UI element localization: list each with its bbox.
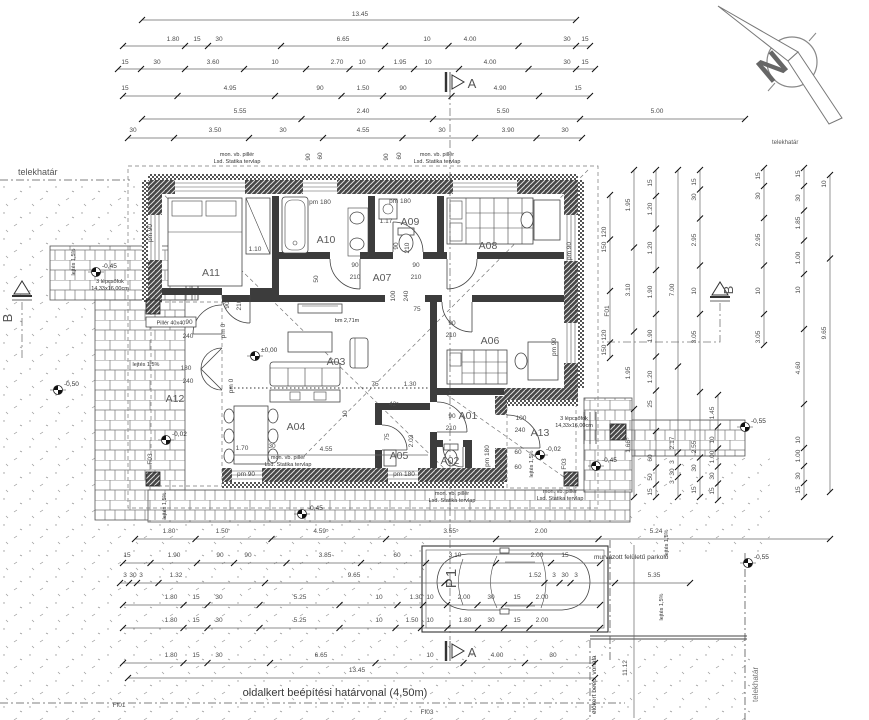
bed-a06 bbox=[447, 350, 507, 384]
dim-label: 30 bbox=[709, 472, 716, 480]
dim-label: 10 bbox=[358, 59, 366, 66]
dim-label: 3.05 bbox=[755, 330, 762, 343]
level-value: -0,02 bbox=[546, 446, 561, 453]
level-value: -0,02 bbox=[172, 431, 187, 438]
dim-label: 10 bbox=[424, 59, 432, 66]
svg-text:A: A bbox=[468, 645, 477, 660]
dim-label: 10 bbox=[426, 594, 434, 601]
plan-dim-label: pm 0 bbox=[220, 323, 227, 338]
dim-label: 2.00 bbox=[531, 552, 544, 559]
door bbox=[447, 259, 477, 289]
plan-dim-label: 75 bbox=[384, 433, 391, 441]
plan-dim-label: 90 bbox=[224, 301, 231, 309]
plan-dim-label: 210 bbox=[446, 332, 457, 339]
dim-label: 30 bbox=[438, 127, 446, 134]
dim-label: 1.90 bbox=[647, 285, 654, 298]
terrace-door bbox=[193, 305, 222, 334]
plan-dim-label: 11.12 bbox=[622, 660, 629, 676]
plan-dim-label: 90 bbox=[393, 242, 400, 250]
dim-label: 90 bbox=[399, 85, 407, 92]
dim-label: 2.00 bbox=[458, 594, 471, 601]
dim-label: 1.95 bbox=[625, 366, 632, 379]
window bbox=[453, 180, 517, 194]
dim-label: 13.45 bbox=[352, 11, 369, 18]
dim-label: 60 bbox=[393, 552, 401, 559]
dim-label: 3.60 bbox=[207, 59, 220, 66]
plan-dim-label: 90 bbox=[305, 153, 312, 161]
plan-dim-label: 1.10 bbox=[249, 246, 262, 253]
dim-label: 2.70 bbox=[331, 59, 344, 66]
dim-label: 3 bbox=[123, 572, 127, 579]
dim-label: 5.00 bbox=[651, 108, 664, 115]
dim-label: 6.65 bbox=[337, 36, 350, 43]
dim-label: 1.90 bbox=[168, 552, 181, 559]
dim-label: 15 bbox=[121, 59, 129, 66]
dim-label: 10 bbox=[271, 59, 279, 66]
dim-label: 30 bbox=[669, 468, 676, 476]
dim-label: 120 bbox=[601, 226, 608, 237]
dim-label: 10 bbox=[375, 617, 383, 624]
plan-dim-label: 100 bbox=[390, 290, 397, 301]
steps-note: 3 lépcsőfok bbox=[560, 416, 588, 422]
svg-text:B: B bbox=[0, 314, 15, 323]
dim-label: 15 bbox=[561, 552, 569, 559]
room-label-a13: A13 bbox=[531, 427, 550, 439]
dim-label: 1.52 bbox=[529, 572, 542, 579]
steps-note: 14,33x16,00cm bbox=[555, 423, 593, 429]
dim-label: 15 bbox=[709, 487, 716, 495]
statika-note: mon. vb. pillér bbox=[271, 455, 305, 461]
slope-note: lejtés 1,5% bbox=[529, 450, 535, 477]
dim-label: 4.95 bbox=[224, 85, 237, 92]
room-label-a11: A11 bbox=[202, 267, 220, 279]
room-label-a07: A07 bbox=[373, 272, 392, 284]
steps-note: 14,33x16,00cm bbox=[91, 286, 129, 292]
dim-label: 15 bbox=[123, 552, 131, 559]
ref-label: F03 bbox=[561, 458, 568, 470]
oldalkert-label: oldalkert beépítési határvonal (4,50m) bbox=[243, 687, 428, 699]
dim-label: 30 bbox=[153, 59, 161, 66]
section-a-marker-top: A bbox=[446, 72, 477, 92]
dim-label: 15 bbox=[647, 179, 654, 187]
dim-label: 13.45 bbox=[349, 667, 366, 674]
dim-label: 90 bbox=[216, 552, 224, 559]
plan-dim-label: 75 bbox=[413, 306, 421, 313]
plan-dim-label: 210 bbox=[350, 274, 361, 281]
dim-label: 15 bbox=[795, 486, 802, 494]
level-value: ±0,00 bbox=[261, 347, 278, 354]
dim-label: 1.00 bbox=[795, 449, 802, 462]
kitchen-counter-a04 bbox=[270, 390, 340, 402]
dim-label: 10 bbox=[423, 36, 431, 43]
dim-label: 5.50 bbox=[497, 108, 510, 115]
statika-note: Lsd. Statika tervlap bbox=[537, 496, 584, 502]
dim-label: 15 bbox=[574, 85, 582, 92]
statika-note: Lsd. Statika tervlap bbox=[265, 462, 312, 468]
dim-label: 3.50 bbox=[209, 127, 222, 134]
statika-note: Lsd. Statika tervlap bbox=[414, 159, 461, 165]
parking-note: murvázott felületű parkoló bbox=[594, 554, 669, 561]
dim-label: 2.00 bbox=[536, 617, 549, 624]
plan-dim-label: 240 bbox=[183, 333, 194, 340]
ceiling-height-note: bm 2,71m bbox=[335, 318, 360, 324]
statika-note: mon. vb. pillér bbox=[543, 489, 577, 495]
dim-label: 10 bbox=[426, 617, 434, 624]
plan-dim-label: pm 180 bbox=[389, 198, 411, 205]
dim-label: 10 bbox=[691, 287, 698, 295]
dim-label: 3.10 bbox=[449, 552, 462, 559]
dim-label: 120 bbox=[601, 329, 608, 340]
dim-label: 30 bbox=[215, 617, 223, 624]
dim-label: 1.45 bbox=[709, 406, 716, 419]
dim-label: 1.80 bbox=[163, 528, 176, 535]
dim-label: 2.95 bbox=[755, 233, 762, 246]
dim-label: 4.00 bbox=[491, 652, 504, 659]
dim-label: 10 bbox=[795, 436, 802, 444]
telekhatar-right-label: telekhatár bbox=[751, 667, 760, 702]
dim-label: 4.60 bbox=[795, 361, 802, 374]
room-label-a04: A04 bbox=[287, 421, 306, 433]
dim-label: 1.32 bbox=[170, 572, 183, 579]
dim-label: 15 bbox=[691, 486, 698, 494]
dim-label: 5.25 bbox=[294, 617, 307, 624]
section-b-marker-right: B bbox=[600, 282, 736, 342]
window bbox=[303, 180, 337, 194]
room-label-a12: A12 bbox=[166, 393, 185, 405]
plan-dim-label: 60 bbox=[317, 152, 324, 160]
dim-label: 2.95 bbox=[691, 233, 698, 246]
room-label-a06: A06 bbox=[481, 335, 500, 347]
dim-label: 1.95 bbox=[394, 59, 407, 66]
room-label-a05: A05 bbox=[390, 450, 409, 462]
plan-dim-label: 240 bbox=[515, 427, 526, 434]
slope-note: lejtés 1,5% bbox=[162, 492, 168, 519]
dim-label: 9.65 bbox=[821, 326, 828, 339]
dim-label: 3.85 bbox=[319, 552, 332, 559]
statika-note: Lsd. Statika tervlap bbox=[214, 159, 261, 165]
plan-dim-label: 1.30 bbox=[404, 381, 417, 388]
armchair-a03 bbox=[350, 338, 368, 368]
plan-dim-label: 90 bbox=[383, 153, 390, 161]
svg-text:B: B bbox=[721, 286, 736, 295]
plan-dim-label: pm 90 bbox=[566, 242, 573, 260]
svg-text:Pillér 40x40: Pillér 40x40 bbox=[157, 321, 186, 327]
dim-label: 30 bbox=[549, 652, 557, 659]
plan-dim-label: 90 bbox=[448, 413, 456, 420]
dim-label: 60 bbox=[647, 454, 654, 462]
dim-label: 15 bbox=[513, 594, 521, 601]
room-label-a01: A01 bbox=[459, 410, 478, 422]
level-value: -0,55 bbox=[754, 554, 769, 561]
level-value: -0,55 bbox=[751, 418, 766, 425]
level-value: -0,45 bbox=[308, 505, 323, 512]
plan-dim-label: 60 bbox=[514, 449, 522, 456]
telekhatar-top-right-label: telekhatár bbox=[772, 140, 798, 146]
parking-stall-label: P1 bbox=[443, 568, 460, 588]
dim-label: 1.20 bbox=[647, 202, 654, 215]
dim-label: 9.65 bbox=[348, 572, 361, 579]
dim-label: 15 bbox=[121, 85, 129, 92]
dim-label: 30 bbox=[129, 127, 137, 134]
dim-label: 30 bbox=[215, 594, 223, 601]
plan-dim-label: pm 180 bbox=[484, 445, 491, 467]
plan-dim-label: 210 bbox=[446, 425, 457, 432]
dim-label: 1.50 bbox=[216, 528, 229, 535]
plan-dim-label: pm 90 bbox=[147, 224, 154, 242]
plan-dim-label: pm 90 bbox=[237, 471, 255, 478]
dim-label: 2.17 bbox=[669, 436, 676, 449]
dim-label: 25 bbox=[647, 400, 654, 408]
level-value: -0,45 bbox=[102, 263, 117, 270]
window bbox=[175, 180, 245, 194]
plan-dim-label: 30 bbox=[268, 443, 276, 450]
dim-label: 50 bbox=[647, 473, 654, 481]
dim-label: 15 bbox=[192, 652, 200, 659]
dim-label: 1.80 bbox=[165, 652, 178, 659]
level-value: -0,45 bbox=[602, 457, 617, 464]
statika-note: mon. vb. pillér bbox=[220, 152, 254, 158]
dim-label: 15 bbox=[755, 172, 762, 180]
dim-label: 3 bbox=[669, 460, 676, 464]
dim-label: 15 bbox=[581, 36, 589, 43]
plan-dim-label: 100 bbox=[516, 415, 527, 422]
steps-note: 3 lépcsőfok bbox=[96, 279, 124, 285]
dim-label: 1.50 bbox=[357, 85, 370, 92]
ref-label: Ff03 bbox=[420, 709, 433, 716]
bed-a08 bbox=[447, 198, 533, 244]
dim-label: 2.55 bbox=[691, 440, 698, 453]
dim-label: 3 bbox=[669, 480, 676, 484]
dim-label: 15 bbox=[795, 170, 802, 178]
plan-dim-label: pm 180 bbox=[393, 471, 415, 478]
dim-label: 1.50 bbox=[406, 617, 419, 624]
plan-dim-label: 240 bbox=[183, 378, 194, 385]
dim-label: 4.55 bbox=[357, 127, 370, 134]
dim-label: 30 bbox=[563, 36, 571, 43]
tv-bench-a03 bbox=[298, 304, 342, 313]
dim-label: 10 bbox=[375, 594, 383, 601]
dim-label: 30 bbox=[279, 127, 287, 134]
dim-label: 15 bbox=[581, 59, 589, 66]
dim-label: 15 bbox=[691, 178, 698, 186]
dim-label: 3.55⁵ bbox=[443, 528, 459, 535]
dim-label: 3 bbox=[574, 572, 578, 579]
plan-dim-label: 1.70 bbox=[236, 445, 249, 452]
room-label-a09: A09 bbox=[401, 216, 420, 228]
dim-label: 30 bbox=[563, 59, 571, 66]
slope-note: lejtés 1,5% bbox=[659, 593, 665, 620]
plan-dim-label: 210 bbox=[236, 299, 243, 310]
dim-label: 3 bbox=[139, 572, 143, 579]
room-label-a03: A03 bbox=[327, 356, 346, 368]
sinks-a10 bbox=[348, 208, 368, 256]
dim-label: 15 bbox=[513, 617, 521, 624]
floor-plan-svg: P1 A A B B bbox=[0, 0, 869, 720]
dim-label: 30 bbox=[755, 192, 762, 200]
door bbox=[442, 302, 472, 332]
dim-label: 3.10 bbox=[625, 283, 632, 296]
plan-dim-label: 10 bbox=[342, 410, 349, 418]
dim-label: 1.85 bbox=[795, 216, 802, 229]
plan-dim-label: 90 bbox=[412, 262, 420, 269]
dim-label: 10 bbox=[709, 436, 716, 444]
dim-label: 10 bbox=[755, 287, 762, 295]
plan-dim-label: pm 0 bbox=[228, 378, 235, 393]
plan-dim-label: 180 bbox=[181, 365, 192, 372]
dim-label: 1.00 bbox=[709, 450, 716, 463]
terrace-double-door bbox=[201, 348, 222, 390]
dim-label: 1.66⁵ bbox=[625, 437, 632, 453]
dim-label: 30 bbox=[691, 464, 698, 472]
statika-note: mon. vb. pillér bbox=[420, 152, 454, 158]
room-label-a02: A02 bbox=[441, 455, 460, 467]
level-value: -0,50 bbox=[64, 381, 79, 388]
dim-label: 15 bbox=[193, 36, 201, 43]
dim-label: 30 bbox=[487, 617, 495, 624]
dim-label: 3.05 bbox=[691, 330, 698, 343]
dim-label: 4.90 bbox=[494, 85, 507, 92]
plan-dim-label: 2.03 bbox=[408, 434, 415, 447]
plan-dim-label: pm 90 bbox=[551, 338, 558, 356]
dim-label: 15 bbox=[647, 488, 654, 496]
dim-label: 30 bbox=[795, 194, 802, 202]
plan-dim-label: 4.55 bbox=[320, 446, 333, 453]
dim-label: 30 bbox=[795, 472, 802, 480]
ref-label: Ff01 bbox=[112, 702, 125, 709]
dim-label: 4.00 bbox=[484, 59, 497, 66]
room-label-a10: A10 bbox=[317, 234, 336, 246]
plan-dim-label: 60 bbox=[514, 464, 522, 471]
plan-dim-label: 75 bbox=[371, 381, 379, 388]
dim-label: 30 bbox=[129, 572, 137, 579]
plan-dim-label: 90 bbox=[351, 262, 359, 269]
dim-label: 1.30 bbox=[410, 594, 423, 601]
room-label-a08: A08 bbox=[479, 240, 498, 252]
plan-dim-label: 90 bbox=[185, 319, 193, 326]
plan-dim-label: 210 bbox=[411, 274, 422, 281]
dim-label: 150 bbox=[601, 241, 608, 252]
dim-label: 10 bbox=[821, 180, 828, 188]
telekhatar-left-label: telekhatár bbox=[18, 167, 58, 177]
dim-label: 5.25 bbox=[294, 594, 307, 601]
window bbox=[564, 323, 578, 363]
dim-label: 30 bbox=[215, 36, 223, 43]
plan-dim-label: 240 bbox=[403, 290, 410, 301]
dim-label: 30 bbox=[561, 572, 569, 579]
dim-label: 90 bbox=[316, 85, 324, 92]
plan-dim-label: 210 bbox=[404, 242, 411, 253]
ref-label: F03 bbox=[147, 453, 154, 465]
dim-label: 15 bbox=[192, 594, 200, 601]
dim-label: 2.00 bbox=[535, 528, 548, 535]
plan-dim-label: 50 bbox=[313, 275, 320, 283]
dim-label: 1.95 bbox=[625, 198, 632, 211]
svg-text:A: A bbox=[468, 76, 477, 91]
dim-label: 2.40 bbox=[357, 108, 370, 115]
dim-label: 4.00 bbox=[464, 36, 477, 43]
dim-label: 1.20 bbox=[647, 241, 654, 254]
statika-note: mon. vb. pillér bbox=[435, 491, 469, 497]
dim-label: 30 bbox=[215, 652, 223, 659]
ref-label: F01 bbox=[604, 305, 611, 317]
table-a03 bbox=[288, 332, 332, 352]
dim-label: 1.80 bbox=[165, 617, 178, 624]
dim-label: 5.24 bbox=[650, 528, 663, 535]
plan-dim-label: pm 180 bbox=[309, 199, 331, 206]
dim-label: 10 bbox=[426, 652, 434, 659]
dim-label: 30 bbox=[487, 594, 495, 601]
dim-label: 4.59⁵ bbox=[313, 528, 329, 535]
dim-label: 6.65 bbox=[315, 652, 328, 659]
plan-dim-label: 1.17 bbox=[380, 218, 393, 225]
dim-label: 1.20 bbox=[647, 370, 654, 383]
bathtub-a10 bbox=[282, 197, 308, 253]
floor-plan-page: P1 A A B B bbox=[0, 0, 869, 720]
statika-note: Lsd. Statika tervlap bbox=[429, 498, 476, 504]
dim-label: 1.80 bbox=[167, 36, 180, 43]
dim-label: 1.80 bbox=[459, 617, 472, 624]
dim-label: 1.80 bbox=[165, 594, 178, 601]
slope-note: lejtés 1,5% bbox=[71, 248, 77, 275]
dim-label: 5.35 bbox=[648, 572, 661, 579]
slope-note: lejtés 1,5% bbox=[664, 529, 670, 556]
dim-label: 3 bbox=[552, 572, 556, 579]
dim-label: 15 bbox=[192, 617, 200, 624]
dim-label: 7.00 bbox=[669, 283, 676, 296]
dim-label: 5.55 bbox=[234, 108, 247, 115]
dim-label: 3.90 bbox=[502, 127, 515, 134]
dim-label: 90 bbox=[244, 552, 252, 559]
slope-note: lejtés 1,5% bbox=[133, 362, 160, 368]
plan-dim-label: 60 bbox=[396, 152, 403, 160]
dim-label: 1.90 bbox=[647, 329, 654, 342]
dim-label: 30 bbox=[691, 193, 698, 201]
plan-dim-label: 90 bbox=[448, 320, 456, 327]
dim-label: 30 bbox=[561, 127, 569, 134]
dim-label: 10 bbox=[795, 286, 802, 294]
dim-label: 1.00 bbox=[795, 251, 802, 264]
dim-label: 2.00 bbox=[536, 594, 549, 601]
plan-dim-label: 42⁵ bbox=[389, 401, 399, 408]
dim-label: 150 bbox=[601, 344, 608, 355]
north-arrow: N bbox=[718, 6, 842, 124]
